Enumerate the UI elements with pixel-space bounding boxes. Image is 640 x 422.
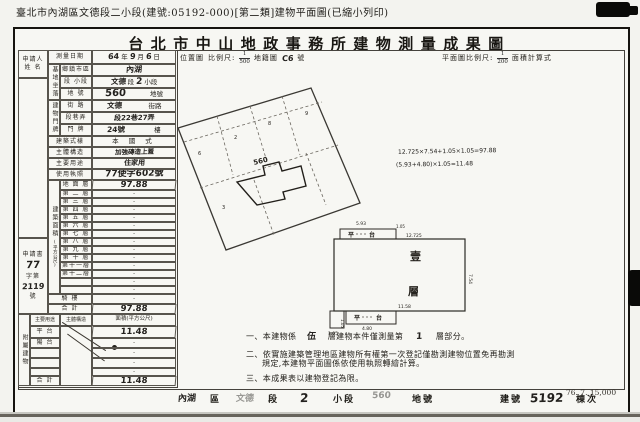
floor-row-label: 合 計 [48, 304, 92, 314]
license-label: 使用執照 [48, 169, 92, 180]
street-name: 文德 [106, 102, 122, 110]
bottom-strip-item: 560 [372, 391, 392, 401]
main-floor-outline [334, 239, 465, 311]
floor-row-value: · [92, 214, 176, 222]
section-label: 段 小段 [60, 76, 92, 88]
floor-row-value: · [92, 222, 176, 230]
annex-row-label: 合 計 [30, 376, 60, 386]
bottom-strip-item: 文德 [236, 391, 255, 404]
structure-label: 主體構造 [48, 147, 92, 158]
floor-row-label: 第 七 層 [60, 230, 92, 238]
bottom-platform-label-2: 台 [376, 314, 382, 322]
street-label: 街 路 [60, 100, 92, 112]
dim-bottom-width: 11.58 [398, 304, 411, 310]
floor-area-group-label: 建築面積 (平方公尺) [48, 180, 60, 294]
annex-row-label [30, 358, 60, 368]
floor-row-value: · [92, 254, 176, 262]
cadastre-label: 地籍圖 [254, 53, 278, 63]
note-1-level-handwritten: 1 [416, 333, 423, 342]
applicant-label-1: 申請人 [22, 57, 43, 63]
dim-right-height: 7.54 [467, 274, 473, 284]
lane-handwritten: 段22巷27弄 [113, 114, 154, 122]
floor-row-value: · [92, 294, 176, 304]
floor-row-label: 第十二層 [60, 270, 92, 278]
door-unit: 樓 [154, 127, 161, 134]
annex-row-value: · [92, 368, 176, 376]
location-scale-fraction: 1 500 [239, 51, 250, 64]
annex-row-label [30, 368, 60, 376]
bottom-strip-item: 內湖 [178, 391, 197, 404]
structure-handwritten: 加強磚造上蓋 [114, 149, 154, 156]
bottom-strip-item: 小段 [333, 392, 355, 405]
dim-platform-depth: 1.05 [396, 224, 405, 229]
note-1-floors-handwritten: 伍 [307, 333, 317, 342]
plan-scale-denominator: 200 [497, 59, 508, 65]
license-value: 77使字602號 [92, 169, 176, 180]
floor-row-label: 地 面 層 [60, 180, 92, 190]
parcel-grid-lines [184, 96, 338, 235]
floor-row-value: · [92, 262, 176, 270]
annex-row-value: · [92, 338, 176, 348]
floor-row-label: 第 二 層 [60, 190, 92, 198]
floor-row-value: 97.88 [92, 180, 177, 190]
area-formula-line-2: (5.93+4.80)×1.05=11.48 [396, 160, 473, 168]
floor-row-label: 第 八 層 [60, 238, 92, 246]
floor-row-label: 第 三 層 [60, 198, 92, 206]
notes-block: 一、本建物係 伍 層建物本件僅測量第 1 層部分。 二、依實施建築管理地區建物所… [246, 332, 594, 383]
survey-date-label: 測量日期 [48, 50, 92, 64]
note-2-line-2: 規定,本建物平面圖係依使用執照轉繪計算。 [246, 359, 594, 368]
plan-scale-label: 平面圖比例尺: [442, 53, 493, 63]
floor-row-label: 第 六 層 [60, 222, 92, 230]
district-handwritten: 內湖 [126, 66, 143, 74]
annex-use-header: 主要用途 [30, 314, 60, 326]
location-scale-numerator: 1 [239, 51, 250, 58]
floor-row-value: · [92, 278, 176, 286]
floor-row-label: 第 五 層 [60, 214, 92, 222]
note-2-line-1: 二、依實施建築管理地區建物所有權第一次登記僅勘測建物位置免再勘測 [246, 350, 594, 359]
section-unit: 段 [128, 79, 135, 86]
floor-area-group-text: 建築面積 [51, 206, 57, 238]
parcel-mark: 9 [305, 111, 308, 117]
use-handwritten: 住家用 [123, 160, 145, 167]
location-map-label: 位置圖 [180, 53, 204, 63]
floor-area-unit: (平方公尺) [52, 240, 57, 268]
annex-area-header: 面積(平方公尺) [92, 314, 176, 326]
floor-row-value: · [92, 238, 176, 246]
parcel-mark: 2 [234, 135, 237, 141]
district-label: 鄉鎮市區 [60, 64, 92, 76]
dim-top-platform-width: 5.93 [356, 221, 366, 227]
survey-day: 6 [146, 53, 152, 61]
annex-row-value: 11.48 [92, 376, 177, 386]
lot-value: 560 地號 [92, 88, 176, 100]
section-name: 文德 [110, 78, 126, 86]
application-label: 申請書 [22, 252, 43, 258]
bottom-strip-item: 棟次 [576, 392, 598, 405]
street-value: 文德 街路 [92, 100, 176, 112]
note-1: 一、本建物係 伍 層建物本件僅測量第 1 層部分。 [246, 332, 594, 342]
application-hao-label: 號 [29, 294, 36, 300]
bottom-strip-item: 5192 [529, 391, 563, 406]
application-zi-label: 字第 [26, 274, 40, 280]
note-1-text: 層建物本件僅測量第 [328, 332, 404, 341]
annex-row-value: 11.48 [91, 326, 176, 338]
scan-artifact-blob [624, 6, 638, 15]
floor-row-label: 第 十 層 [60, 254, 92, 262]
site-group-label: 基地坐落 [48, 64, 60, 100]
location-scale-denominator: 500 [239, 59, 250, 65]
floor-row-value: · [92, 270, 176, 278]
plan-scale-numerator: 1 [497, 51, 508, 58]
floor-row-value: · [92, 198, 176, 206]
lot-unit: 地號 [150, 91, 163, 98]
dim-top-width: 12.725 [406, 233, 422, 239]
application-number-stamp: 申請書 77 字第 2119 號 [18, 238, 48, 314]
survey-year: 64 [108, 53, 120, 61]
survey-month-unit: 月 [137, 54, 144, 61]
annex-row-label [30, 348, 60, 358]
bottom-strip-item: 地號 [412, 392, 434, 405]
annex-structure-column [60, 326, 92, 386]
survey-year-unit: 年 [121, 54, 128, 61]
bottom-platform-label-1: 平 [354, 315, 360, 322]
lot-label: 地 號 [60, 88, 92, 100]
style-label: 建築式樣 [48, 136, 92, 147]
applicant-label-2: 姓 名 [25, 65, 42, 71]
door-number: 24號 [107, 126, 125, 134]
bottom-strip-item: 區 [210, 392, 221, 405]
floor-label-top: 壹 [410, 249, 421, 263]
lane-label: 段巷弄 [60, 112, 92, 124]
cadastre-unit: 號 [297, 53, 305, 63]
floor-row-label [60, 278, 92, 286]
floor-row-value: · [92, 206, 176, 214]
use-label: 主要用途 [48, 158, 92, 169]
subsection-number: 2 [136, 77, 143, 86]
location-scale-label: 比例尺: [208, 53, 235, 63]
lane-value: 段22巷27弄 [92, 112, 176, 124]
annex-row-value: · [92, 358, 176, 368]
top-platform-label-2: 台 [369, 231, 375, 239]
annex-row-value: · [92, 348, 176, 358]
parcel-mark: 6 [198, 151, 201, 157]
bottom-strip-item: 2 [300, 391, 309, 405]
scan-edge-band [0, 417, 640, 422]
subsection-unit: 小段 [144, 79, 157, 86]
note-1-text: 一、本建物係 [246, 332, 296, 341]
floor-row-value: · [92, 190, 176, 198]
door-value: 24號 樓 [92, 124, 176, 136]
district-value: 內湖 [92, 64, 176, 76]
location-map-header: 位置圖 比例尺: 1 500 地籍圖 C6 號 [180, 52, 305, 64]
area-formula-label: 面積計算式 [512, 53, 552, 63]
top-platform-label-1: 平 [348, 232, 354, 239]
annex-row-label: 陽 台 [30, 338, 60, 348]
plan-scale-header: 平面圖比例尺: 1 200 面積計算式 [442, 52, 552, 64]
bottom-strip-item: 段 [268, 392, 279, 405]
survey-month: 9 [129, 53, 135, 61]
survey-day-unit: 日 [153, 54, 160, 61]
survey-date-value: 64 年 9 月 6 日 [92, 50, 176, 64]
door-label: 門 牌 [60, 124, 92, 136]
address-group-label: 建物門牌 [48, 100, 60, 136]
applicant-empty-cell [18, 78, 48, 238]
use-value: 住家用 [92, 158, 176, 169]
floor-row-label: 第 四 層 [60, 206, 92, 214]
applicant-name-cell: 申請人 姓 名 [18, 50, 48, 78]
cadastre-number: C6 [282, 53, 294, 62]
floor-row-value: · [92, 246, 176, 254]
page-header: 臺北市內湖區文德段二小段(建號:05192-000)[第二類]建物平面圖(已縮小… [16, 4, 389, 19]
floor-row-label: 第十一層 [60, 262, 92, 270]
application-serial-number: 2119 [22, 283, 45, 291]
floor-row-value: 97.88 [92, 304, 177, 314]
annex-row-label: 平 台 [30, 326, 60, 338]
scan-artifact-bar [628, 270, 640, 306]
structure-value: 加強磚造上蓋 [92, 147, 176, 158]
parcel-mark: 3 [222, 205, 225, 211]
floor-row-label: 第 九 層 [60, 246, 92, 254]
style-value: 本 國 式 [92, 136, 176, 147]
plan-scale-fraction: 1 200 [497, 51, 508, 64]
floor-row-value: · [92, 286, 176, 294]
floor-plan-drawing: 平 台 5.93 1.05 12.725 壹 層 7.54 11.58 平 台 … [322, 216, 474, 342]
parcel-mark: 8 [268, 121, 271, 127]
floor-row-value: · [92, 230, 176, 238]
note-1-text: 層部分。 [436, 332, 470, 341]
license-handwritten: 77使字602號 [104, 169, 163, 179]
note-3: 三、本成果表以建物登記為限。 [246, 374, 594, 383]
floor-row-label: 騎 樓 [48, 294, 92, 304]
bottom-strip-item: 建號 [500, 392, 522, 405]
floor-row-label [60, 286, 92, 294]
street-unit: 街路 [149, 103, 162, 110]
building-footprint [237, 162, 306, 205]
lot-number: 560 [105, 89, 127, 99]
annex-group-label: 附屬建物 [18, 314, 30, 386]
floor-label-bottom: 層 [408, 285, 419, 298]
section-value: 文德 段 2 小段 [92, 76, 176, 88]
application-year-number: 77 [26, 261, 41, 271]
